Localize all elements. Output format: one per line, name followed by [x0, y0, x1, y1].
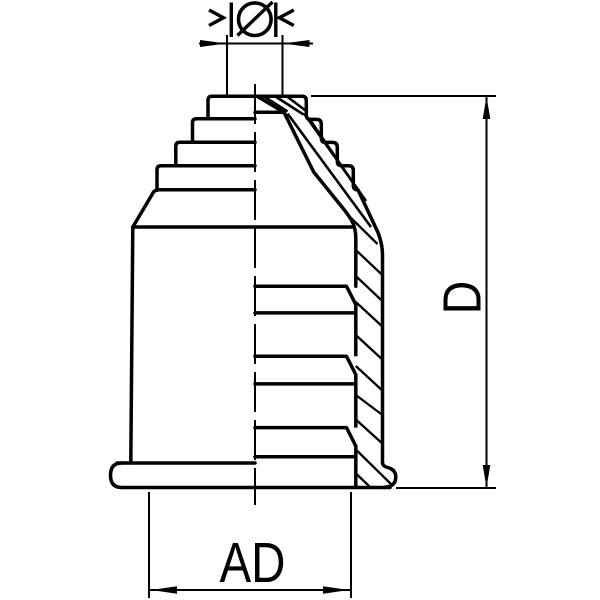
svg-text:D: D: [432, 281, 492, 315]
svg-text:AD: AD: [220, 531, 286, 594]
